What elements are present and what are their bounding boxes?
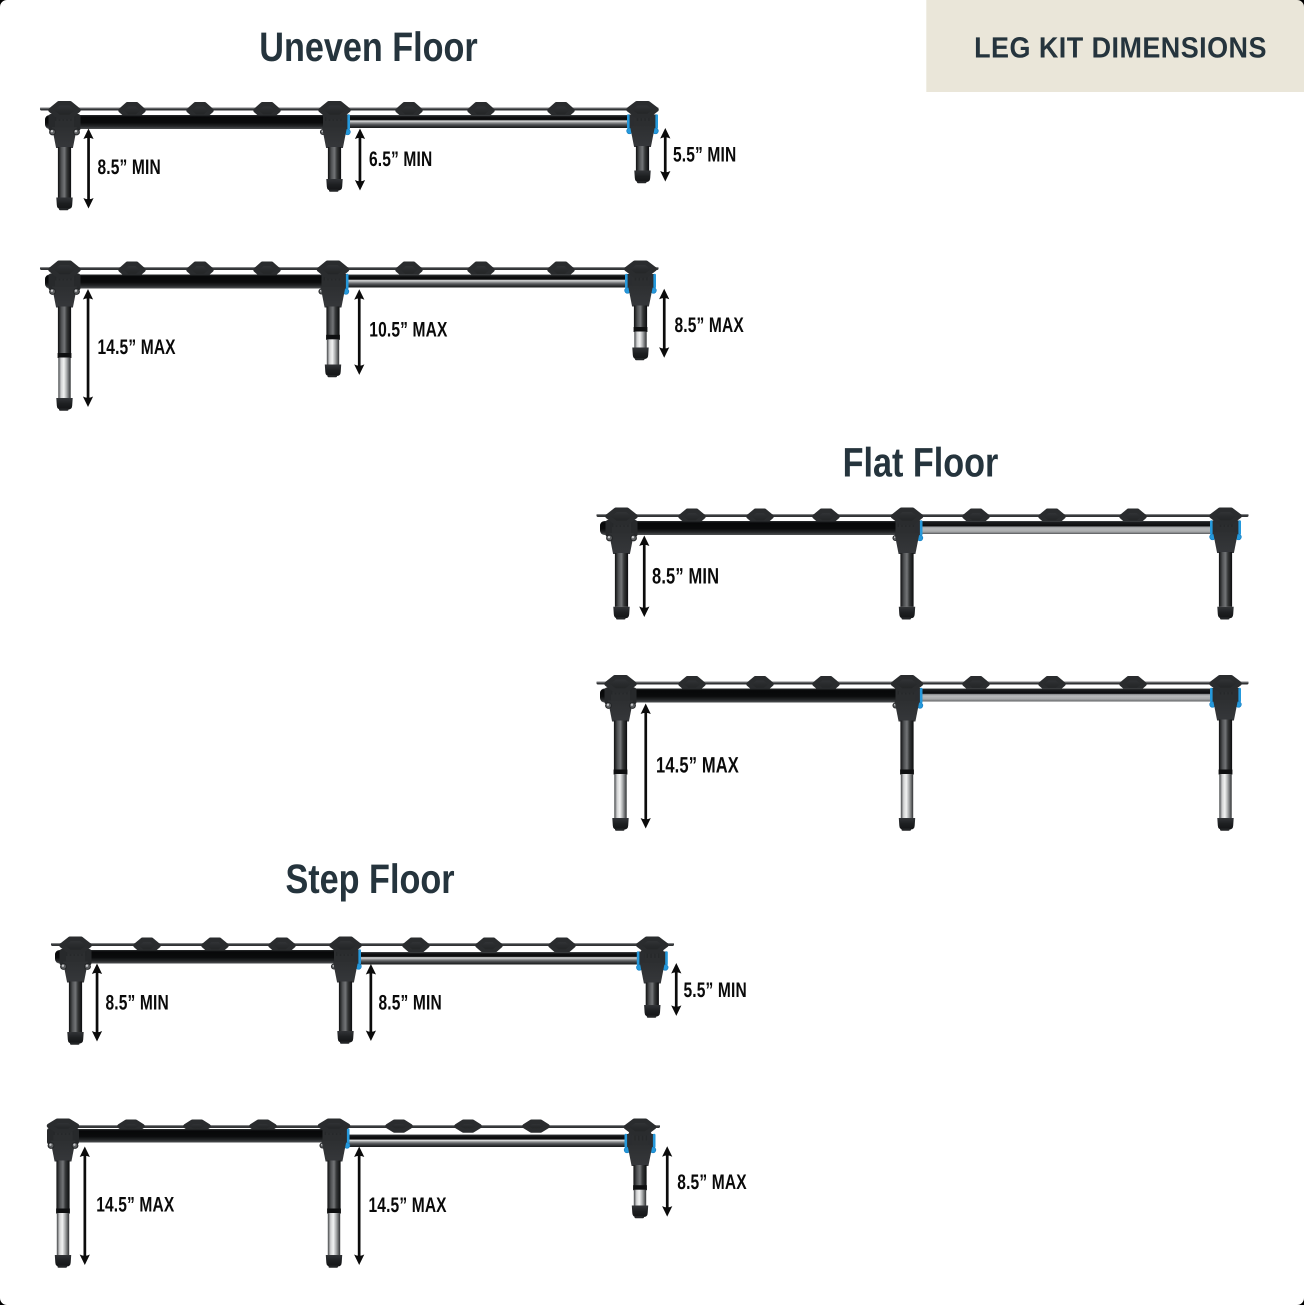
svg-text:5.5” MIN: 5.5” MIN [673, 143, 736, 166]
svg-text:8.5” MAX: 8.5” MAX [675, 314, 744, 337]
svg-text:5.5” MIN: 5.5” MIN [684, 979, 747, 1002]
svg-text:14.5” MAX: 14.5” MAX [96, 1194, 174, 1217]
svg-text:8.5” MIN: 8.5” MIN [106, 992, 169, 1015]
svg-text:8.5” MIN: 8.5” MIN [379, 992, 442, 1015]
svg-text:Uneven Floor: Uneven Floor [259, 24, 477, 70]
svg-text:10.5” MAX: 10.5” MAX [369, 318, 447, 341]
svg-text:14.5” MAX: 14.5” MAX [656, 752, 739, 777]
svg-text:8.5” MAX: 8.5” MAX [677, 1171, 746, 1194]
svg-text:14.5” MAX: 14.5” MAX [98, 336, 176, 359]
svg-text:LEG KIT DIMENSIONS: LEG KIT DIMENSIONS [974, 32, 1267, 65]
svg-text:14.5” MAX: 14.5” MAX [369, 1194, 447, 1217]
svg-text:8.5” MIN: 8.5” MIN [652, 563, 719, 588]
svg-text:Step Floor: Step Floor [285, 856, 454, 902]
svg-text:Flat Floor: Flat Floor [843, 439, 999, 485]
svg-text:6.5” MIN: 6.5” MIN [369, 148, 432, 171]
svg-text:8.5” MIN: 8.5” MIN [98, 156, 161, 179]
